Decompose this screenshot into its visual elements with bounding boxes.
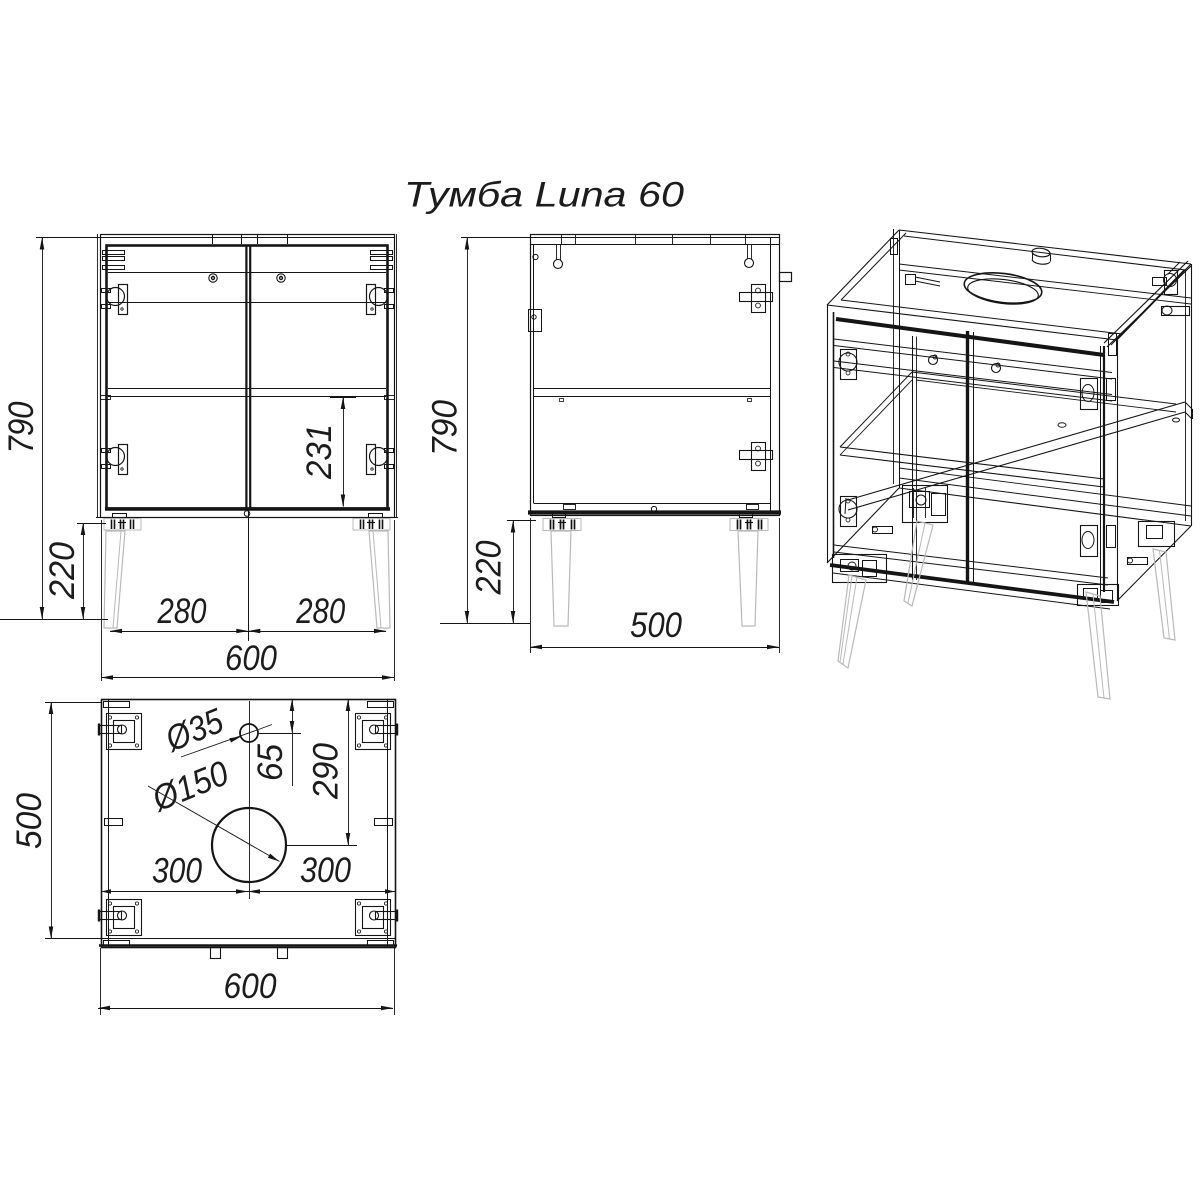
svg-text:290: 290 (306, 742, 345, 799)
svg-text:231: 231 (300, 424, 339, 480)
svg-text:220: 220 (469, 540, 508, 595)
svg-text:790: 790 (2, 401, 41, 453)
svg-text:280: 280 (157, 592, 207, 631)
svg-text:Тумба Luna 60: Тумба Luna 60 (404, 175, 685, 214)
svg-text:65: 65 (251, 743, 290, 781)
svg-text:300: 300 (152, 851, 202, 890)
svg-text:790: 790 (425, 399, 464, 456)
svg-text:220: 220 (43, 541, 82, 599)
svg-text:500: 500 (630, 606, 682, 645)
svg-text:500: 500 (10, 792, 49, 849)
svg-text:600: 600 (225, 639, 277, 678)
svg-text:300: 300 (300, 851, 351, 890)
svg-text:280: 280 (295, 592, 345, 631)
svg-text:600: 600 (224, 967, 277, 1006)
